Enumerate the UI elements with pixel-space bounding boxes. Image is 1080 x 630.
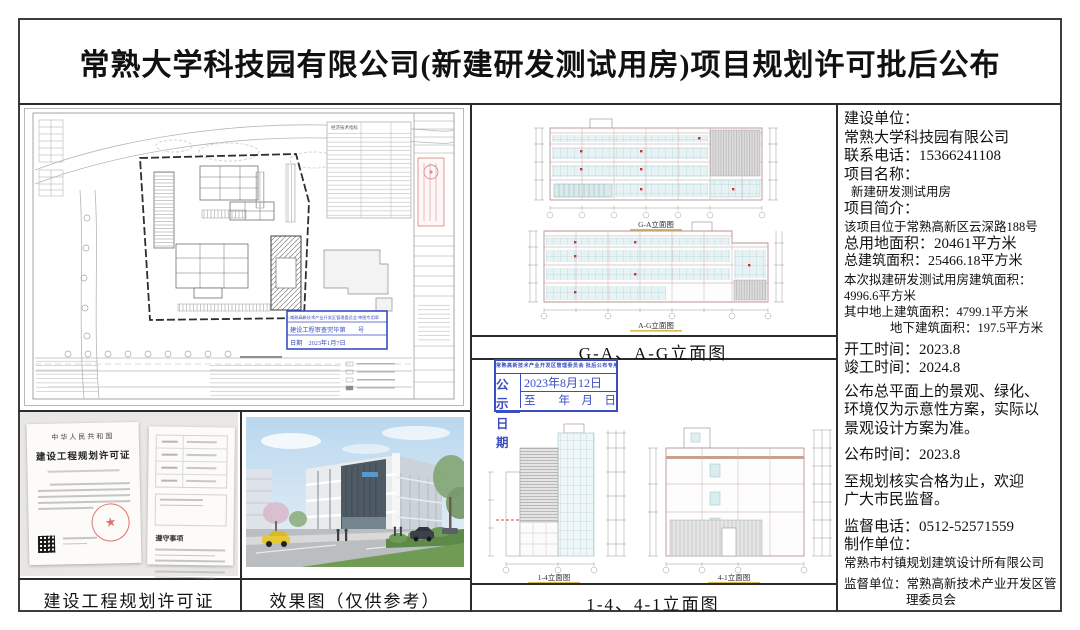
svg-text:A-G立面图: A-G立面图 — [638, 320, 674, 330]
info-line: 公布总平面上的景观、绿化、 — [844, 383, 1058, 402]
svg-text:日期 2023年1月7日: 日期 2023年1月7日 — [290, 339, 346, 347]
info-line: 至规划核实合格为止，欢迎 — [844, 473, 1058, 492]
info-line: 理委员会 — [844, 592, 1058, 608]
indicator-table: 经济技术指标 — [327, 122, 411, 218]
axis-bubbles — [541, 313, 771, 319]
qr-code-icon — [38, 536, 55, 553]
info-line: 本次拟建研发测试用房建筑面积： — [844, 272, 1058, 288]
divider — [240, 410, 242, 612]
info-line: 监督电话：0512-52571559 — [844, 518, 1058, 537]
divider — [836, 103, 838, 612]
info-line: 4996.6平方米 — [844, 288, 1058, 304]
publish-stamp-date-until: 至 年 月 日 — [521, 392, 616, 408]
announcement-poster: { "title": "常熟大学科技园有限公司(新建研发测试用房)项目规划许可批… — [0, 0, 1080, 630]
info-line: 监督单位：常熟高新技术产业开发区管 — [844, 576, 1058, 592]
svg-text:常熟高新技术产业开发区管理委员会 审图专用章: 常熟高新技术产业开发区管理委员会 审图专用章 — [290, 314, 379, 321]
axis-bubbles — [547, 212, 765, 218]
info-line: 其中地上建筑面积：4799.1平方米 — [844, 304, 1058, 320]
permit-remarks-box — [155, 493, 227, 526]
info-line: 建设单位： — [844, 110, 1058, 129]
svg-text:建设工程审查完毕第 号: 建设工程审查完毕第 号 — [290, 326, 364, 334]
info-line: 项目简介： — [844, 200, 1058, 219]
site-plan-drawing: 经济技术指标 常熟高新技术产业开发区管理委员会 审图专用章 建设工程审查完毕第 … — [24, 108, 464, 406]
info-line: 新建研发测试用房 — [844, 184, 1058, 200]
svg-text:4-1立面图: 4-1立面图 — [718, 572, 751, 582]
info-line: 景观设计方案为准。 — [844, 420, 1058, 439]
elevation-ag-building: A-G立面图 — [528, 222, 784, 332]
divider — [470, 335, 836, 337]
publish-stamp-date: 2023年8月12日 — [521, 374, 616, 392]
permit-page-details: 遵守事项 — [147, 426, 235, 565]
info-line: 制作单位： — [844, 536, 1058, 555]
info-line: 广大市民监督。 — [844, 491, 1058, 510]
caption-elevation-bottom: 1-4、4-1立面图 — [470, 590, 836, 615]
permit-title: 建设工程规划许可证 — [27, 447, 139, 463]
info-line: 开工时间：2023.8 — [844, 341, 1058, 360]
publish-stamp-header: 常熟高新技术产业开发区管理委员会 批后公布专用章 — [496, 361, 616, 374]
info-panel: 建设单位： 常熟大学科技园有限公司 联系电话：15366241108 项目名称：… — [844, 110, 1058, 608]
info-line: 常熟市村镇规划建筑设计所有限公司 — [844, 555, 1058, 571]
permit-detail-table — [155, 435, 228, 489]
info-line: 地下建筑面积：197.5平方米 — [844, 320, 1058, 336]
divider — [470, 583, 836, 585]
proposed-building — [271, 236, 301, 310]
background-building — [246, 469, 272, 533]
elevation-ga-building: G-A立面图 — [534, 119, 778, 231]
review-stamp: 常熟高新技术产业开发区管理委员会 审图专用章 建设工程审查完毕第 号 日期 20… — [287, 311, 387, 349]
divider — [18, 578, 470, 580]
permit-notes-list — [155, 549, 225, 579]
svg-text:1-4立面图: 1-4立面图 — [538, 572, 571, 582]
permit-number-line — [48, 469, 120, 472]
info-line: 竣工时间：2024.8 — [844, 359, 1058, 378]
svg-text:经济技术指标: 经济技术指标 — [331, 124, 358, 131]
publish-stamp: 常熟高新技术产业开发区管理委员会 批后公布专用章 公 示 日 期 2023年8月… — [494, 359, 618, 412]
caption-render: 效果图（仅供参考） — [240, 587, 470, 612]
permit-notes-title: 遵守事项 — [155, 534, 233, 545]
elevation-drawing-top: G-A立面图 A-G立面图 — [470, 104, 836, 335]
publish-stamp-label-gongshi: 公 示 — [496, 374, 520, 413]
svg-text:G-A立面图: G-A立面图 — [638, 219, 674, 229]
page-title: 常熟大学科技园有限公司(新建研发测试用房)项目规划许可批后公布 — [18, 40, 1062, 84]
permit-nation: 中华人民共和国 — [27, 431, 139, 443]
info-line: 公布时间：2023.8 — [844, 446, 1058, 465]
elevation-41-building: 4-1立面图 — [648, 428, 832, 583]
publish-stamp-label-riqi: 日 期 — [496, 413, 520, 451]
rendering-photo — [246, 417, 464, 567]
info-line: 联系电话：15366241108 — [844, 147, 1058, 166]
red-registration-stamp — [418, 158, 444, 226]
permit-date-lines — [63, 537, 97, 549]
permit-page-cover: 中华人民共和国 建设工程规划许可证 ★ — [27, 422, 142, 565]
info-line: 该项目位于常熟高新区云深路188号 — [844, 219, 1058, 235]
info-line: 项目名称： — [844, 166, 1058, 185]
caption-permit: 建设工程规划许可证 — [18, 587, 240, 612]
info-line: 总用地面积：20461平方米 — [844, 235, 1058, 254]
permit-certificate-photo: 中华人民共和国 建设工程规划许可证 ★ 遵守事项 — [20, 412, 238, 576]
info-line: 总建筑面积：25466.18平方米 — [844, 253, 1058, 272]
info-line: 环境仅为示意性方案，实际以 — [844, 401, 1058, 420]
info-line: 常熟大学科技园有限公司 — [844, 129, 1058, 148]
